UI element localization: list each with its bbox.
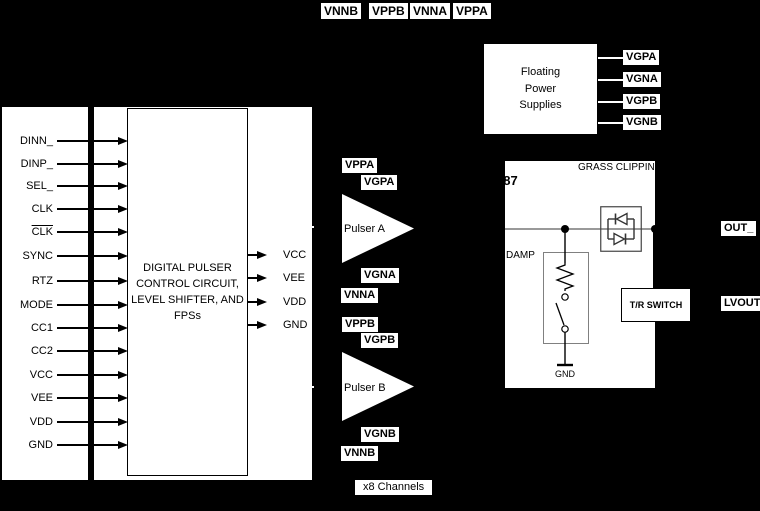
arrowhead-icon [118,182,128,190]
arrowhead-icon [118,371,128,379]
gnd-symbol-label: GND [551,367,579,381]
pulser-a-input-stub [310,226,314,228]
port-chip-vnna: VNNA [341,288,378,303]
arrowhead-icon [118,160,128,168]
input-label-dinp: DINP_ [0,157,53,171]
input-label-cc2: CC2 [0,344,53,358]
port-chip-vppa-top: VPPA [453,3,491,19]
arrowhead-icon [257,251,267,259]
input-wire [57,397,119,399]
fps-wire [598,101,624,103]
arrowhead-icon [257,298,267,306]
port-chip-vgna: VGNA [361,268,399,283]
arrowhead-icon [118,277,128,285]
tr-switch-wire [653,231,655,288]
input-label-vcc: VCC [0,368,53,382]
port-chip-vgnb: VGNB [361,427,399,442]
tr-switch-label: T/R SWITCH [630,300,683,310]
input-wire [57,140,119,142]
fps-wire [598,79,624,81]
arrowhead-icon [118,301,128,309]
port-chip-vppb-top: VPPB [369,3,408,19]
arrowhead-icon [118,205,128,213]
channels-badge: x8 Channels [355,480,432,495]
port-chip-vgpa: VGPA [361,175,397,190]
output-label-gnd: GND [283,318,307,332]
input-label-vee: VEE [0,391,53,405]
grass-clipping-diodes-label: GRASS CLIPPING DIODES [578,162,664,175]
output-label-vcc: VCC [283,248,306,262]
input-wire [57,421,119,423]
antiparallel-diodes-icon [600,206,642,252]
port-chip-vgpb-fps: VGPB [623,94,660,109]
input-label-rtz: RTZ [0,274,53,288]
input-wire [57,185,119,187]
input-wire [57,304,119,306]
port-chip-vgnb-fps: VGNB [623,115,661,130]
arrowhead-icon [118,418,128,426]
arrowhead-icon [257,321,267,329]
arrowhead-icon [118,324,128,332]
arrowhead-icon [118,394,128,402]
arrowhead-icon [118,228,128,236]
tr-switch-block: T/R SWITCH [621,288,691,322]
input-label-vdd: VDD [0,415,53,429]
output-label-vdd: VDD [283,295,306,309]
input-label-sel: SEL_ [0,179,53,193]
pulser-a-label: Pulser A [344,222,385,236]
damp-label: DAMP [506,250,535,263]
input-wire [57,444,119,446]
port-chip-vgna-fps: VGNA [623,72,661,87]
input-wire [57,350,119,352]
arrowhead-icon [257,274,267,282]
fps-wire [598,122,624,124]
pulser-b-label: Pulser B [344,381,386,395]
input-label-gnd: GND [0,438,53,452]
port-chip-vnna-top: VNNA [410,3,450,19]
port-chip-out: OUT_ [721,221,756,236]
input-wire [57,327,119,329]
input-wire [57,374,119,376]
arrowhead-icon [118,252,128,260]
input-label-mode: MODE [0,298,53,312]
input-wire [57,231,119,233]
port-chip-vnnb-top: VNNB [321,3,361,19]
arrowhead-icon [118,441,128,449]
control-block: DIGITAL PULSER CONTROL CIRCUIT, LEVEL SH… [127,108,248,476]
port-chip-vppa: VPPA [342,158,377,173]
port-chip-vppb: VPPB [342,317,378,332]
arrowhead-icon [118,347,128,355]
input-wire [57,255,119,257]
input-label-dinn: DINN_ [0,134,53,148]
port-chip-vnnb: VNNB [341,446,378,461]
input-label-clk: CLK [0,202,53,216]
input-wire [57,208,119,210]
port-chip-lvout: LVOUT_ [721,296,760,311]
part-number-label: 087 [496,174,518,188]
control-block-title: DIGITAL PULSER CONTROL CIRCUIT, LEVEL SH… [131,260,244,324]
fps-title: Floating Power Supplies [519,64,561,114]
input-label-cc1: CC1 [0,321,53,335]
pulser-b-input-stub [310,386,314,388]
output-label-vee: VEE [283,271,305,285]
pulser-block-diagram: VNNB VPPB VNNA VPPA DIGITAL PULSER CONTR… [0,0,760,511]
input-wire [57,163,119,165]
port-chip-vgpb: VGPB [361,333,398,348]
arrowhead-icon [118,137,128,145]
input-label-sync: SYNC [0,249,53,263]
input-label-clkb: CLK [0,225,53,239]
port-chip-vgpa-fps: VGPA [623,50,659,65]
fps-block: Floating Power Supplies [483,43,598,135]
input-wire [57,280,119,282]
fps-wire [598,57,624,59]
damp-circuit-icon [540,225,590,375]
